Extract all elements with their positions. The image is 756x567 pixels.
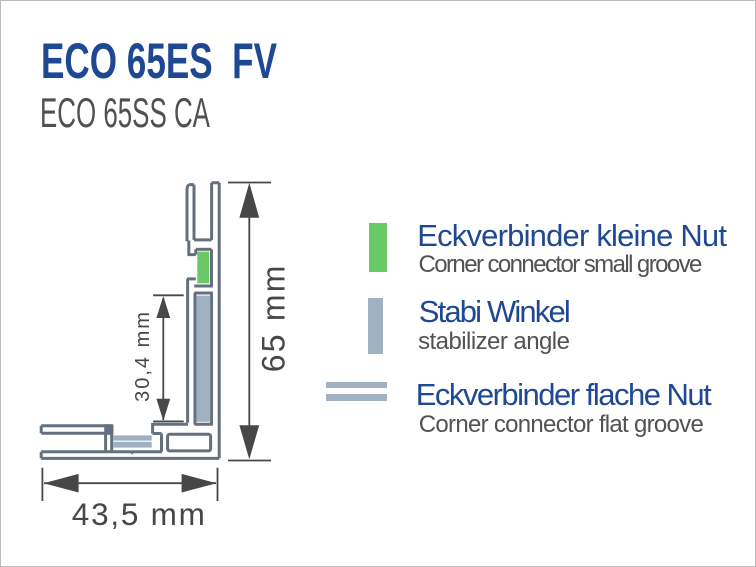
svg-text:43,5 mm: 43,5 mm xyxy=(72,496,207,532)
svg-text:65 mm: 65 mm xyxy=(255,263,291,372)
svg-text:30,4 mm: 30,4 mm xyxy=(132,310,154,402)
